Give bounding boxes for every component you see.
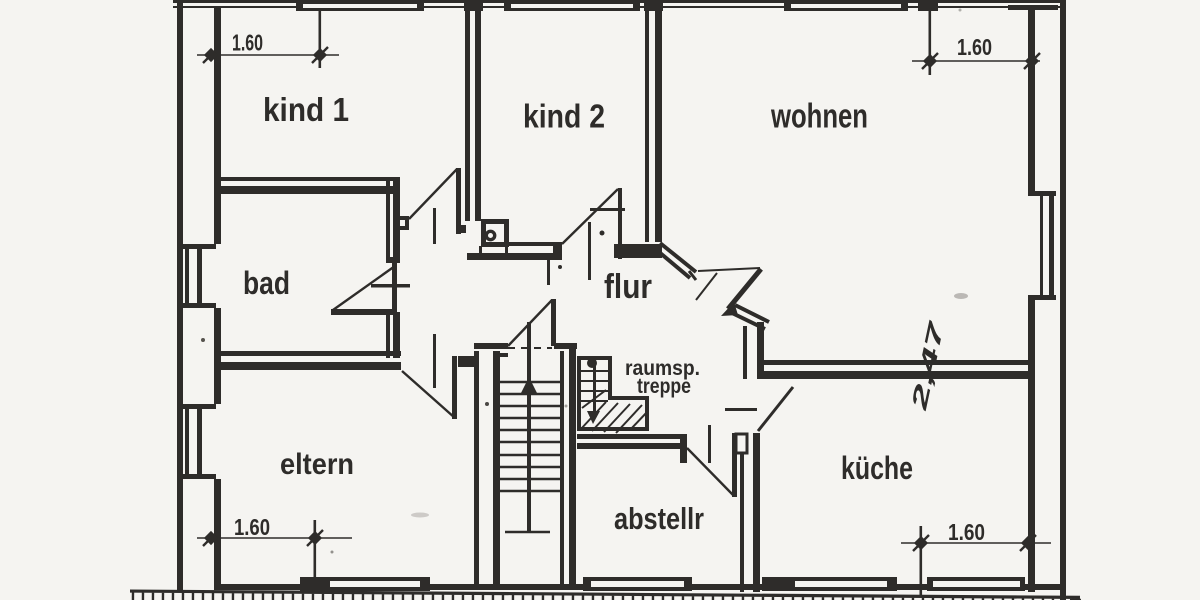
svg-text:küche: küche [841, 450, 913, 486]
svg-text:flur: flur [604, 268, 652, 306]
svg-text:1.60: 1.60 [948, 519, 985, 545]
svg-text:kind 2: kind 2 [523, 98, 605, 135]
svg-text:eltern: eltern [280, 448, 354, 481]
svg-text:wohnen: wohnen [770, 98, 868, 136]
svg-text:bad: bad [243, 265, 290, 301]
svg-text:1.60: 1.60 [957, 34, 992, 60]
svg-text:treppe: treppe [637, 375, 691, 398]
svg-text:kind 1: kind 1 [263, 91, 349, 128]
svg-text:1.60: 1.60 [232, 30, 263, 56]
svg-text:1.60: 1.60 [234, 514, 270, 540]
svg-text:abstellr: abstellr [614, 501, 704, 536]
